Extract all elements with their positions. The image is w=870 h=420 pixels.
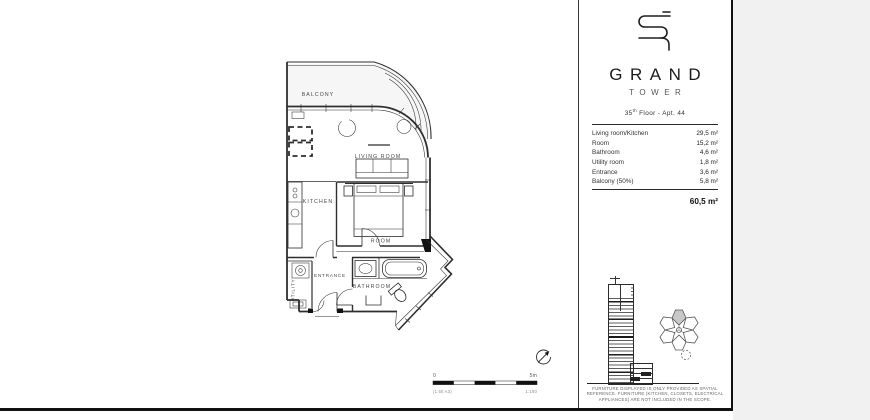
site-marker-circle [679,348,693,362]
bathroom-label: BATHROOM [353,284,391,290]
balcony-label: BALCONY [302,92,335,98]
unit-title: 35th Floor - Apt. 44 [579,108,731,117]
living-room-label: LIVING ROOM [355,154,402,160]
bed [354,184,403,237]
title-panel: GRAND TOWER 35th Floor - Apt. 44 Living … [579,0,731,408]
sheet-bottom-border [0,408,733,411]
total-area: 60,5 m² [592,197,718,206]
bedroom: ROOM [337,182,432,252]
grand-tower-logo-icon [628,10,682,56]
area-row: Living room/Kitchen29,5 m² [592,129,718,139]
brand-name: GRAND [579,65,739,85]
utility-label: UTILITY [291,279,296,302]
entrance-label: ENTRANCE [314,273,346,278]
floor-plan-drawing: BALCONY LIVING ROOM [0,0,578,420]
kitchen: KITCHEN [287,182,337,258]
washbasin [355,261,376,277]
furniture-disclaimer: FURNITURE DISPLAYED IS ONLY PROVIDED AS … [585,386,725,402]
wardrobe [289,143,312,157]
sink [291,209,299,217]
tower-footprint-plan [655,306,703,354]
scale-bar: 0 5m (1:50 A3) 1:100 [433,373,537,394]
brand-subtitle: TOWER [579,88,737,97]
scale-note-left: (1:50 A3) [433,389,452,394]
rule-bottom [592,189,718,190]
rule-top [592,124,718,125]
armchair [339,120,356,137]
apartment-location-highlight [672,310,686,325]
living-room: LIVING ROOM [289,112,411,178]
shower-tray [366,296,381,306]
area-row: Bathroom4,6 m² [592,148,718,158]
ground-line [587,383,699,384]
north-arrow-icon [537,350,551,364]
nightstand [344,186,353,196]
side-table [397,120,411,134]
drawing-sheet: BALCONY LIVING ROOM [0,0,870,420]
nightstand [405,186,414,196]
area-row: Utility room1,8 m² [592,158,718,168]
scale-note-right: 1:100 [526,389,538,394]
balcony: BALCONY [287,62,431,148]
area-table: Living room/Kitchen29,5 m² Room15,2 m² B… [592,129,718,187]
small-table [292,112,304,119]
sofa [356,159,408,178]
outside-background [733,0,870,420]
bathroom: BATHROOM [337,258,428,312]
toilet [388,283,409,305]
scale-start: 0 [433,373,436,379]
sheet-right-border [731,0,733,411]
room-label: ROOM [371,239,392,245]
area-row: Entrance3,6 m² [592,168,718,178]
kitchen-label: KITCHEN [303,199,333,205]
area-row: Balcony (50%)5,8 m² [592,177,718,187]
scale-end: 5m [530,373,537,379]
wardrobe [289,127,312,141]
angled-facade [396,236,453,330]
area-row: Room15,2 m² [592,139,718,149]
